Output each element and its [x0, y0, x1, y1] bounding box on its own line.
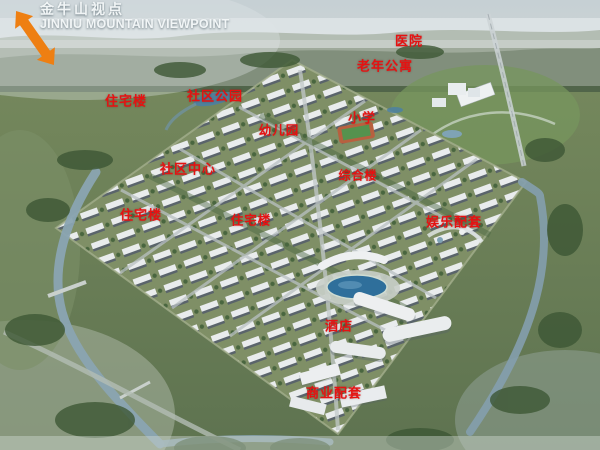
- map-label-residential-south: 住宅楼: [231, 210, 272, 229]
- scene-illustration: [0, 0, 600, 450]
- map-label-kindergarten: 幼儿园: [259, 120, 300, 139]
- map-label-senior-apartments: 老年公寓: [357, 56, 413, 75]
- map-label-residential-west: 住宅楼: [120, 205, 162, 224]
- map-label-primary-school: 小学: [348, 108, 376, 127]
- map-label-hospital: 医院: [395, 31, 423, 50]
- page-title-english: JINNIU MOUNTAIN VIEWPOINT: [40, 18, 230, 31]
- aerial-masterplan-rendering: 金牛山视点 JINNIU MOUNTAIN VIEWPOINT 医院 老年公寓 …: [0, 0, 600, 450]
- direction-double-arrow-icon: [0, 0, 62, 78]
- map-label-entertainment: 娱乐配套: [426, 212, 482, 231]
- map-label-community-center: 社区中心: [160, 159, 216, 178]
- page-title: 金牛山视点 JINNIU MOUNTAIN VIEWPOINT: [40, 2, 230, 31]
- map-label-community-park: 社区公园: [187, 86, 243, 105]
- map-label-commercial: 商业配套: [306, 383, 362, 402]
- map-label-mixed-use-building: 综合楼: [338, 167, 377, 184]
- map-label-hotel: 酒店: [325, 316, 353, 335]
- page-title-chinese: 金牛山视点: [40, 2, 230, 17]
- map-label-residential-north: 住宅楼: [105, 91, 147, 110]
- bottom-haze: [0, 436, 600, 450]
